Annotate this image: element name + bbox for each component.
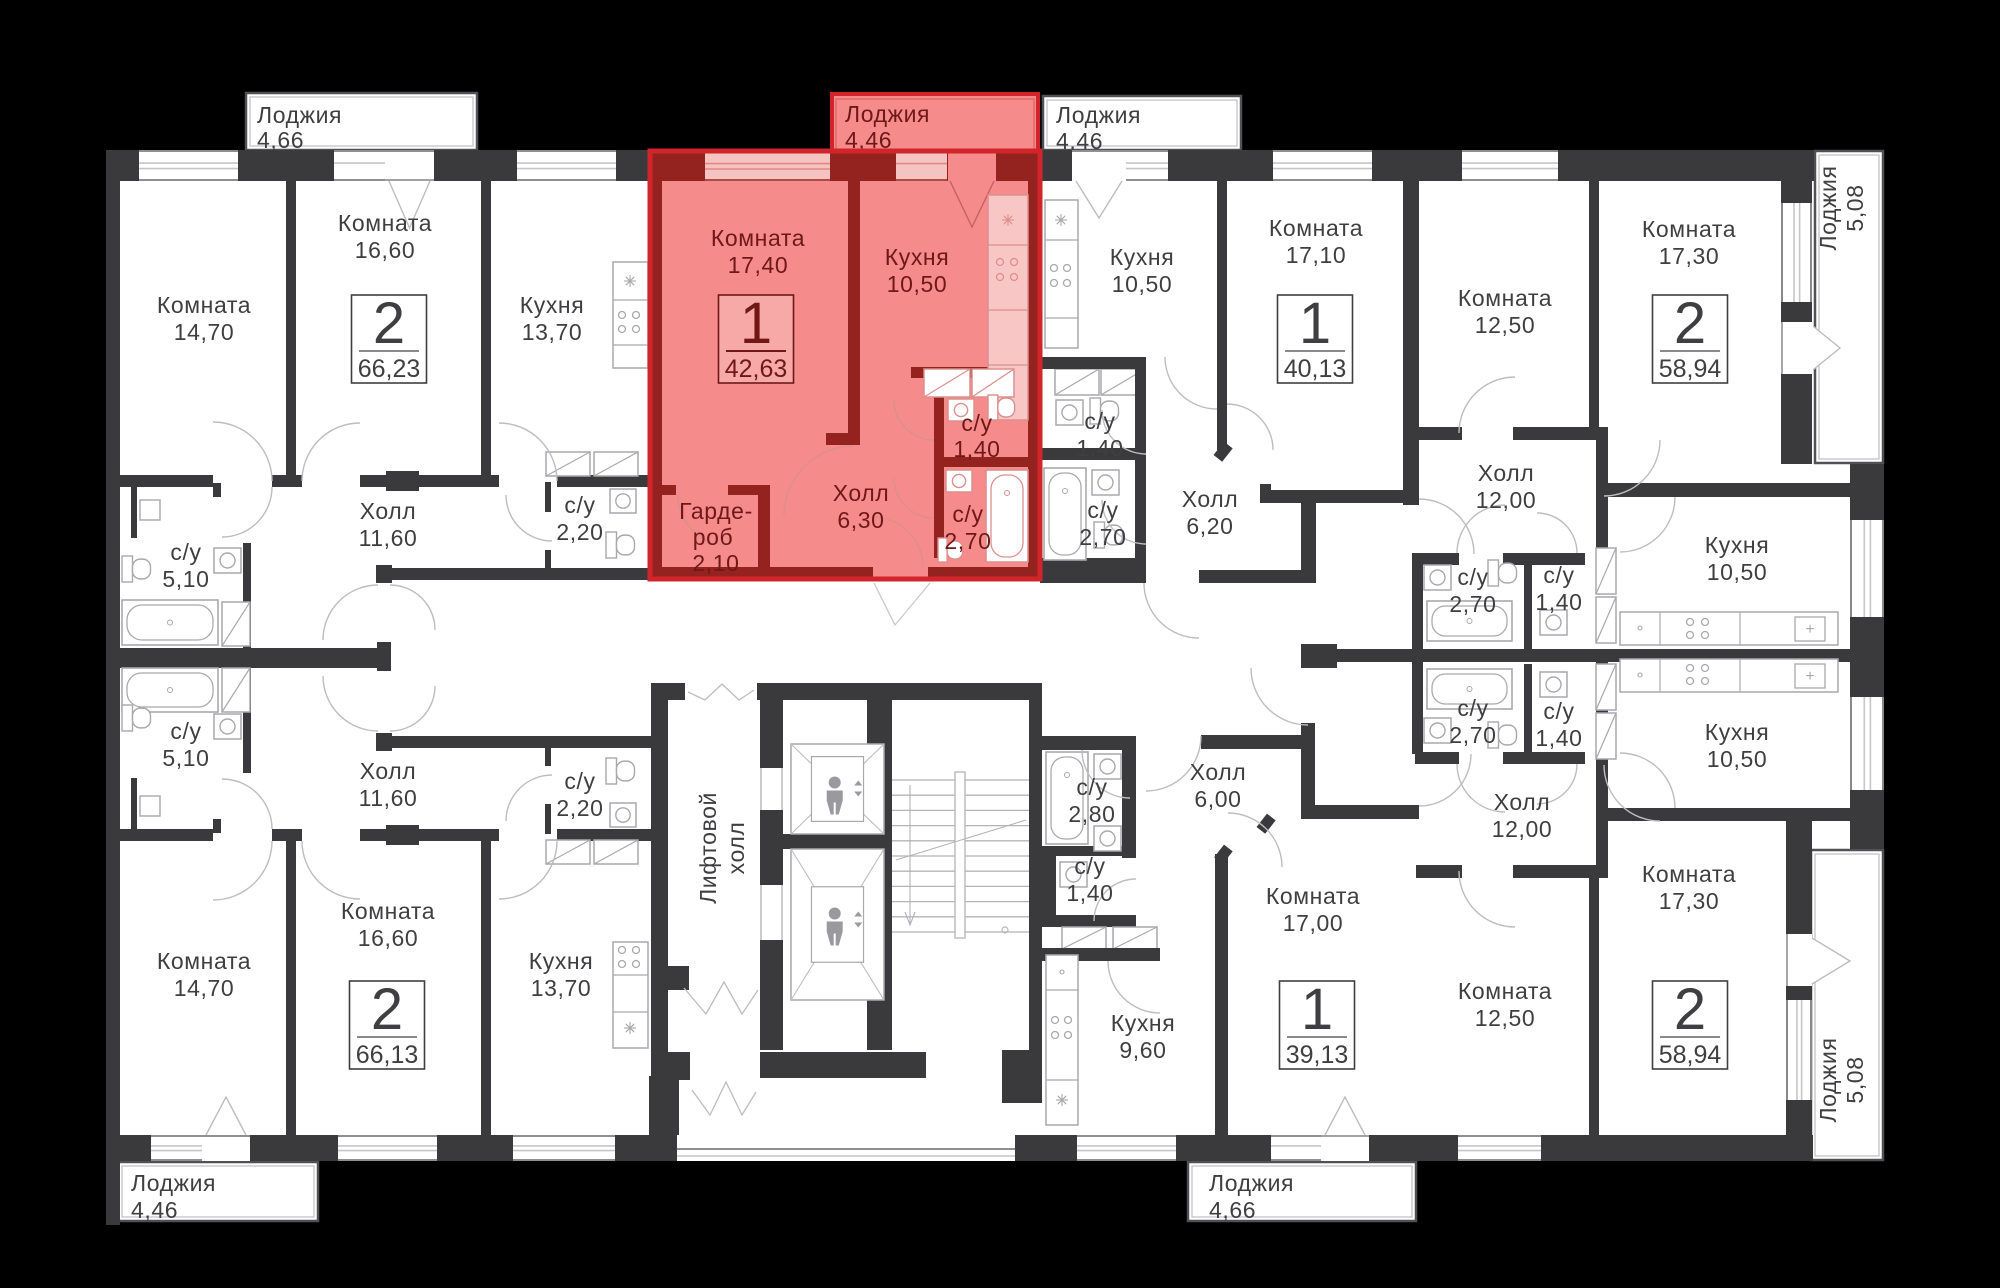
svg-text:холл: холл	[723, 822, 749, 875]
svg-text:16,60: 16,60	[355, 237, 416, 263]
svg-text:1: 1	[1299, 291, 1331, 356]
svg-text:42,63: 42,63	[725, 355, 788, 383]
svg-text:с/у: с/у	[564, 768, 595, 794]
svg-text:9,60: 9,60	[1119, 1037, 1166, 1063]
svg-text:Комната: Комната	[1269, 215, 1363, 241]
svg-text:12,00: 12,00	[1476, 487, 1537, 513]
svg-text:Гарде-: Гарде-	[679, 498, 753, 524]
svg-text:11,60: 11,60	[359, 525, 418, 551]
svg-text:с/у: с/у	[170, 718, 201, 744]
svg-text:с/у: с/у	[1074, 853, 1105, 879]
svg-text:Лоджия: Лоджия	[845, 101, 930, 127]
svg-text:Кухня: Кухня	[1111, 1010, 1176, 1036]
svg-text:+: +	[1805, 621, 1814, 638]
svg-text:39,13: 39,13	[1286, 1041, 1349, 1069]
svg-text:с/у: с/у	[1543, 562, 1574, 588]
svg-text:14,70: 14,70	[174, 319, 235, 345]
svg-text:5,10: 5,10	[162, 745, 209, 771]
svg-text:17,30: 17,30	[1659, 243, 1720, 269]
svg-text:с/у: с/у	[170, 539, 201, 565]
svg-text:10,50: 10,50	[1112, 271, 1173, 297]
svg-text:с/у: с/у	[1457, 564, 1488, 590]
svg-text:1: 1	[740, 291, 772, 356]
svg-text:Комната: Комната	[1642, 861, 1736, 887]
svg-text:Комната: Комната	[1458, 285, 1552, 311]
svg-text:с/у: с/у	[1457, 695, 1488, 721]
svg-text:Кухня: Кухня	[1705, 719, 1770, 745]
svg-text:5,08: 5,08	[1842, 1056, 1868, 1103]
svg-text:4,46: 4,46	[131, 1197, 178, 1223]
svg-text:с/у: с/у	[564, 492, 595, 518]
svg-text:Лоджия: Лоджия	[131, 1170, 216, 1196]
svg-text:2,70: 2,70	[1449, 591, 1496, 617]
svg-text:Холл: Холл	[360, 758, 417, 784]
svg-text:6,30: 6,30	[837, 507, 884, 533]
svg-text:Лоджия: Лоджия	[1209, 1170, 1294, 1196]
svg-text:10,50: 10,50	[887, 271, 948, 297]
svg-text:Холл: Холл	[1494, 789, 1551, 815]
svg-text:6,20: 6,20	[1186, 513, 1233, 539]
svg-text:2,20: 2,20	[556, 519, 603, 545]
svg-text:Комната: Комната	[341, 898, 435, 924]
svg-text:Комната: Комната	[1642, 216, 1736, 242]
svg-text:1,40: 1,40	[1076, 435, 1123, 461]
svg-text:Комната: Комната	[1266, 883, 1360, 909]
svg-text:2: 2	[373, 291, 405, 356]
svg-text:Кухня: Кухня	[1110, 244, 1175, 270]
svg-text:с/у: с/у	[952, 501, 983, 527]
svg-text:Холл: Холл	[1182, 486, 1239, 512]
svg-text:4,66: 4,66	[1209, 1197, 1256, 1223]
svg-text:1: 1	[1301, 977, 1333, 1042]
svg-text:Холл: Холл	[360, 498, 417, 524]
svg-text:12,50: 12,50	[1475, 1005, 1536, 1031]
svg-text:1,40: 1,40	[1066, 880, 1113, 906]
svg-text:12,00: 12,00	[1492, 816, 1553, 842]
svg-text:12,50: 12,50	[1475, 312, 1536, 338]
svg-text:Комната: Комната	[157, 948, 251, 974]
svg-text:Кухня: Кухня	[885, 244, 950, 270]
svg-text:40,13: 40,13	[1284, 355, 1347, 383]
svg-text:5,08: 5,08	[1842, 184, 1868, 231]
svg-text:58,94: 58,94	[1659, 1041, 1722, 1069]
svg-text:2,70: 2,70	[944, 528, 991, 554]
svg-text:Лоджия: Лоджия	[257, 102, 342, 128]
svg-text:2,80: 2,80	[1068, 801, 1115, 827]
svg-text:17,30: 17,30	[1659, 888, 1720, 914]
svg-text:6,00: 6,00	[1194, 786, 1241, 812]
svg-text:1,40: 1,40	[1535, 725, 1582, 751]
svg-text:2,10: 2,10	[692, 550, 739, 576]
svg-text:с/у: с/у	[1084, 408, 1115, 434]
svg-text:Комната: Комната	[711, 225, 805, 251]
svg-text:Комната: Комната	[1458, 978, 1552, 1004]
svg-text:с/у: с/у	[1087, 497, 1118, 523]
svg-text:Лоджия: Лоджия	[1056, 102, 1141, 128]
svg-text:11,60: 11,60	[359, 785, 418, 811]
svg-text:с/у: с/у	[1076, 774, 1107, 800]
svg-text:1,40: 1,40	[953, 436, 1000, 462]
svg-text:Лифтовой: Лифтовой	[695, 792, 721, 904]
svg-text:Холл: Холл	[1190, 759, 1247, 785]
svg-text:Холл: Холл	[833, 480, 890, 506]
svg-text:66,13: 66,13	[356, 1041, 419, 1069]
svg-text:с/у: с/у	[961, 410, 992, 436]
svg-text:Комната: Комната	[157, 292, 251, 318]
svg-text:роб: роб	[693, 524, 734, 550]
svg-text:2,20: 2,20	[556, 795, 603, 821]
svg-text:17,00: 17,00	[1283, 910, 1344, 936]
svg-text:4,66: 4,66	[257, 127, 304, 153]
svg-text:10,50: 10,50	[1707, 746, 1768, 772]
svg-text:13,70: 13,70	[522, 319, 583, 345]
svg-text:5,10: 5,10	[162, 566, 209, 592]
svg-text:2: 2	[1674, 977, 1706, 1042]
svg-text:+: +	[1805, 668, 1814, 685]
svg-text:17,40: 17,40	[728, 252, 789, 278]
svg-text:13,70: 13,70	[531, 975, 592, 1001]
svg-text:17,10: 17,10	[1286, 242, 1347, 268]
svg-text:14,70: 14,70	[174, 975, 235, 1001]
svg-text:Холл: Холл	[1478, 460, 1535, 486]
svg-text:с/у: с/у	[1543, 698, 1574, 724]
svg-text:1,40: 1,40	[1535, 589, 1582, 615]
svg-text:2: 2	[371, 977, 403, 1042]
svg-text:Лоджия: Лоджия	[1815, 1037, 1841, 1122]
svg-text:2,70: 2,70	[1079, 524, 1126, 550]
svg-text:16,60: 16,60	[358, 925, 419, 951]
svg-text:Кухня: Кухня	[1705, 532, 1770, 558]
svg-text:66,23: 66,23	[358, 355, 421, 383]
svg-text:10,50: 10,50	[1707, 559, 1768, 585]
svg-text:58,94: 58,94	[1659, 355, 1722, 383]
svg-text:Кухня: Кухня	[520, 292, 585, 318]
svg-text:Лоджия: Лоджия	[1815, 165, 1841, 250]
svg-text:2: 2	[1674, 291, 1706, 356]
svg-text:Кухня: Кухня	[529, 948, 594, 974]
svg-text:Комната: Комната	[338, 210, 432, 236]
svg-text:2,70: 2,70	[1449, 722, 1496, 748]
